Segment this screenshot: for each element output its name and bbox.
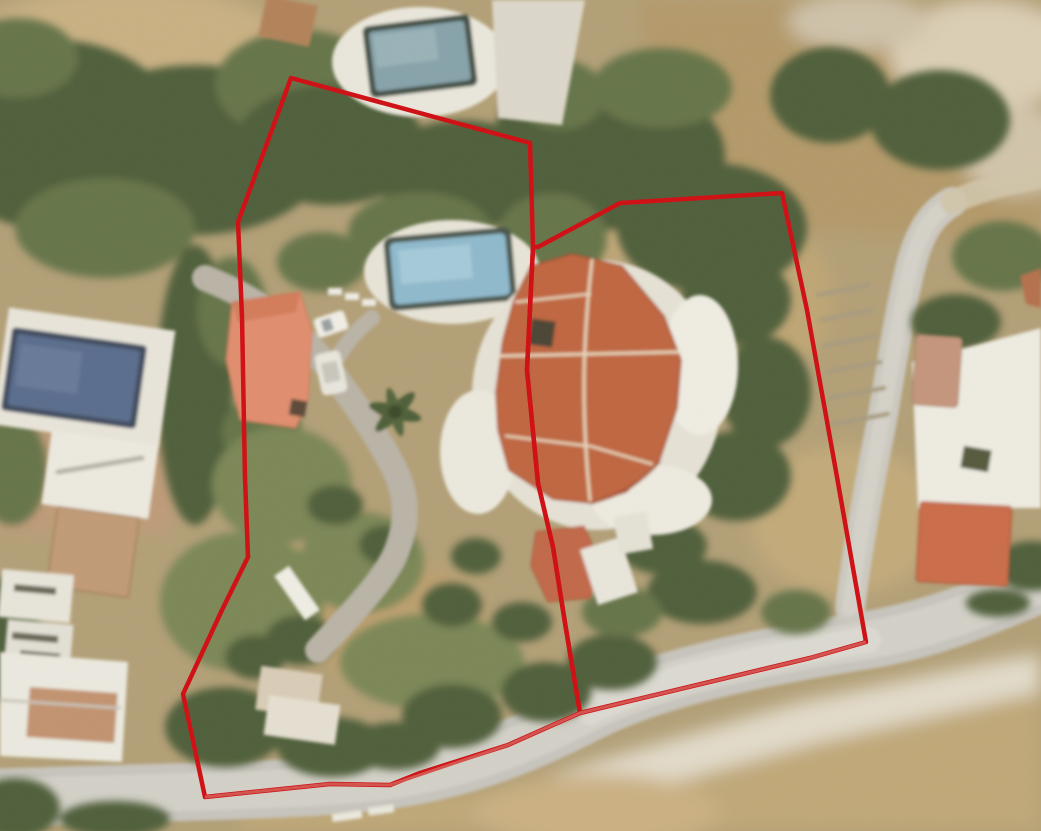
forest-center [592,48,732,128]
east-roof-notch [528,318,555,347]
hedge-right [966,589,1030,617]
left-white-strip [0,569,74,623]
bush [307,485,363,525]
tree-right [770,47,890,143]
west-house-shadow [289,399,308,418]
aerial-photo [0,0,1041,831]
map-canvas[interactable] [0,0,1041,831]
bush [492,602,552,642]
tree-east [647,560,757,624]
palm-crown [388,405,402,419]
sun-lounger [328,288,342,295]
forest-blob [15,178,195,278]
tree-right [870,70,1010,170]
east-outbuilding-wall [613,511,653,554]
left-white-roof [41,431,158,519]
tree-row-bottom [567,634,657,690]
sun-lounger [345,293,359,300]
right-pergola [912,334,963,407]
tree [277,232,367,292]
bush [451,538,501,574]
bush [422,583,482,627]
corner-building-roof [26,687,117,743]
right-house-roof [916,502,1012,587]
left-pool-water-light [15,344,82,394]
west-pool-water-light [398,244,473,284]
tree-overhang [350,722,440,770]
tree-east [761,590,831,634]
sun-lounger [362,299,376,306]
